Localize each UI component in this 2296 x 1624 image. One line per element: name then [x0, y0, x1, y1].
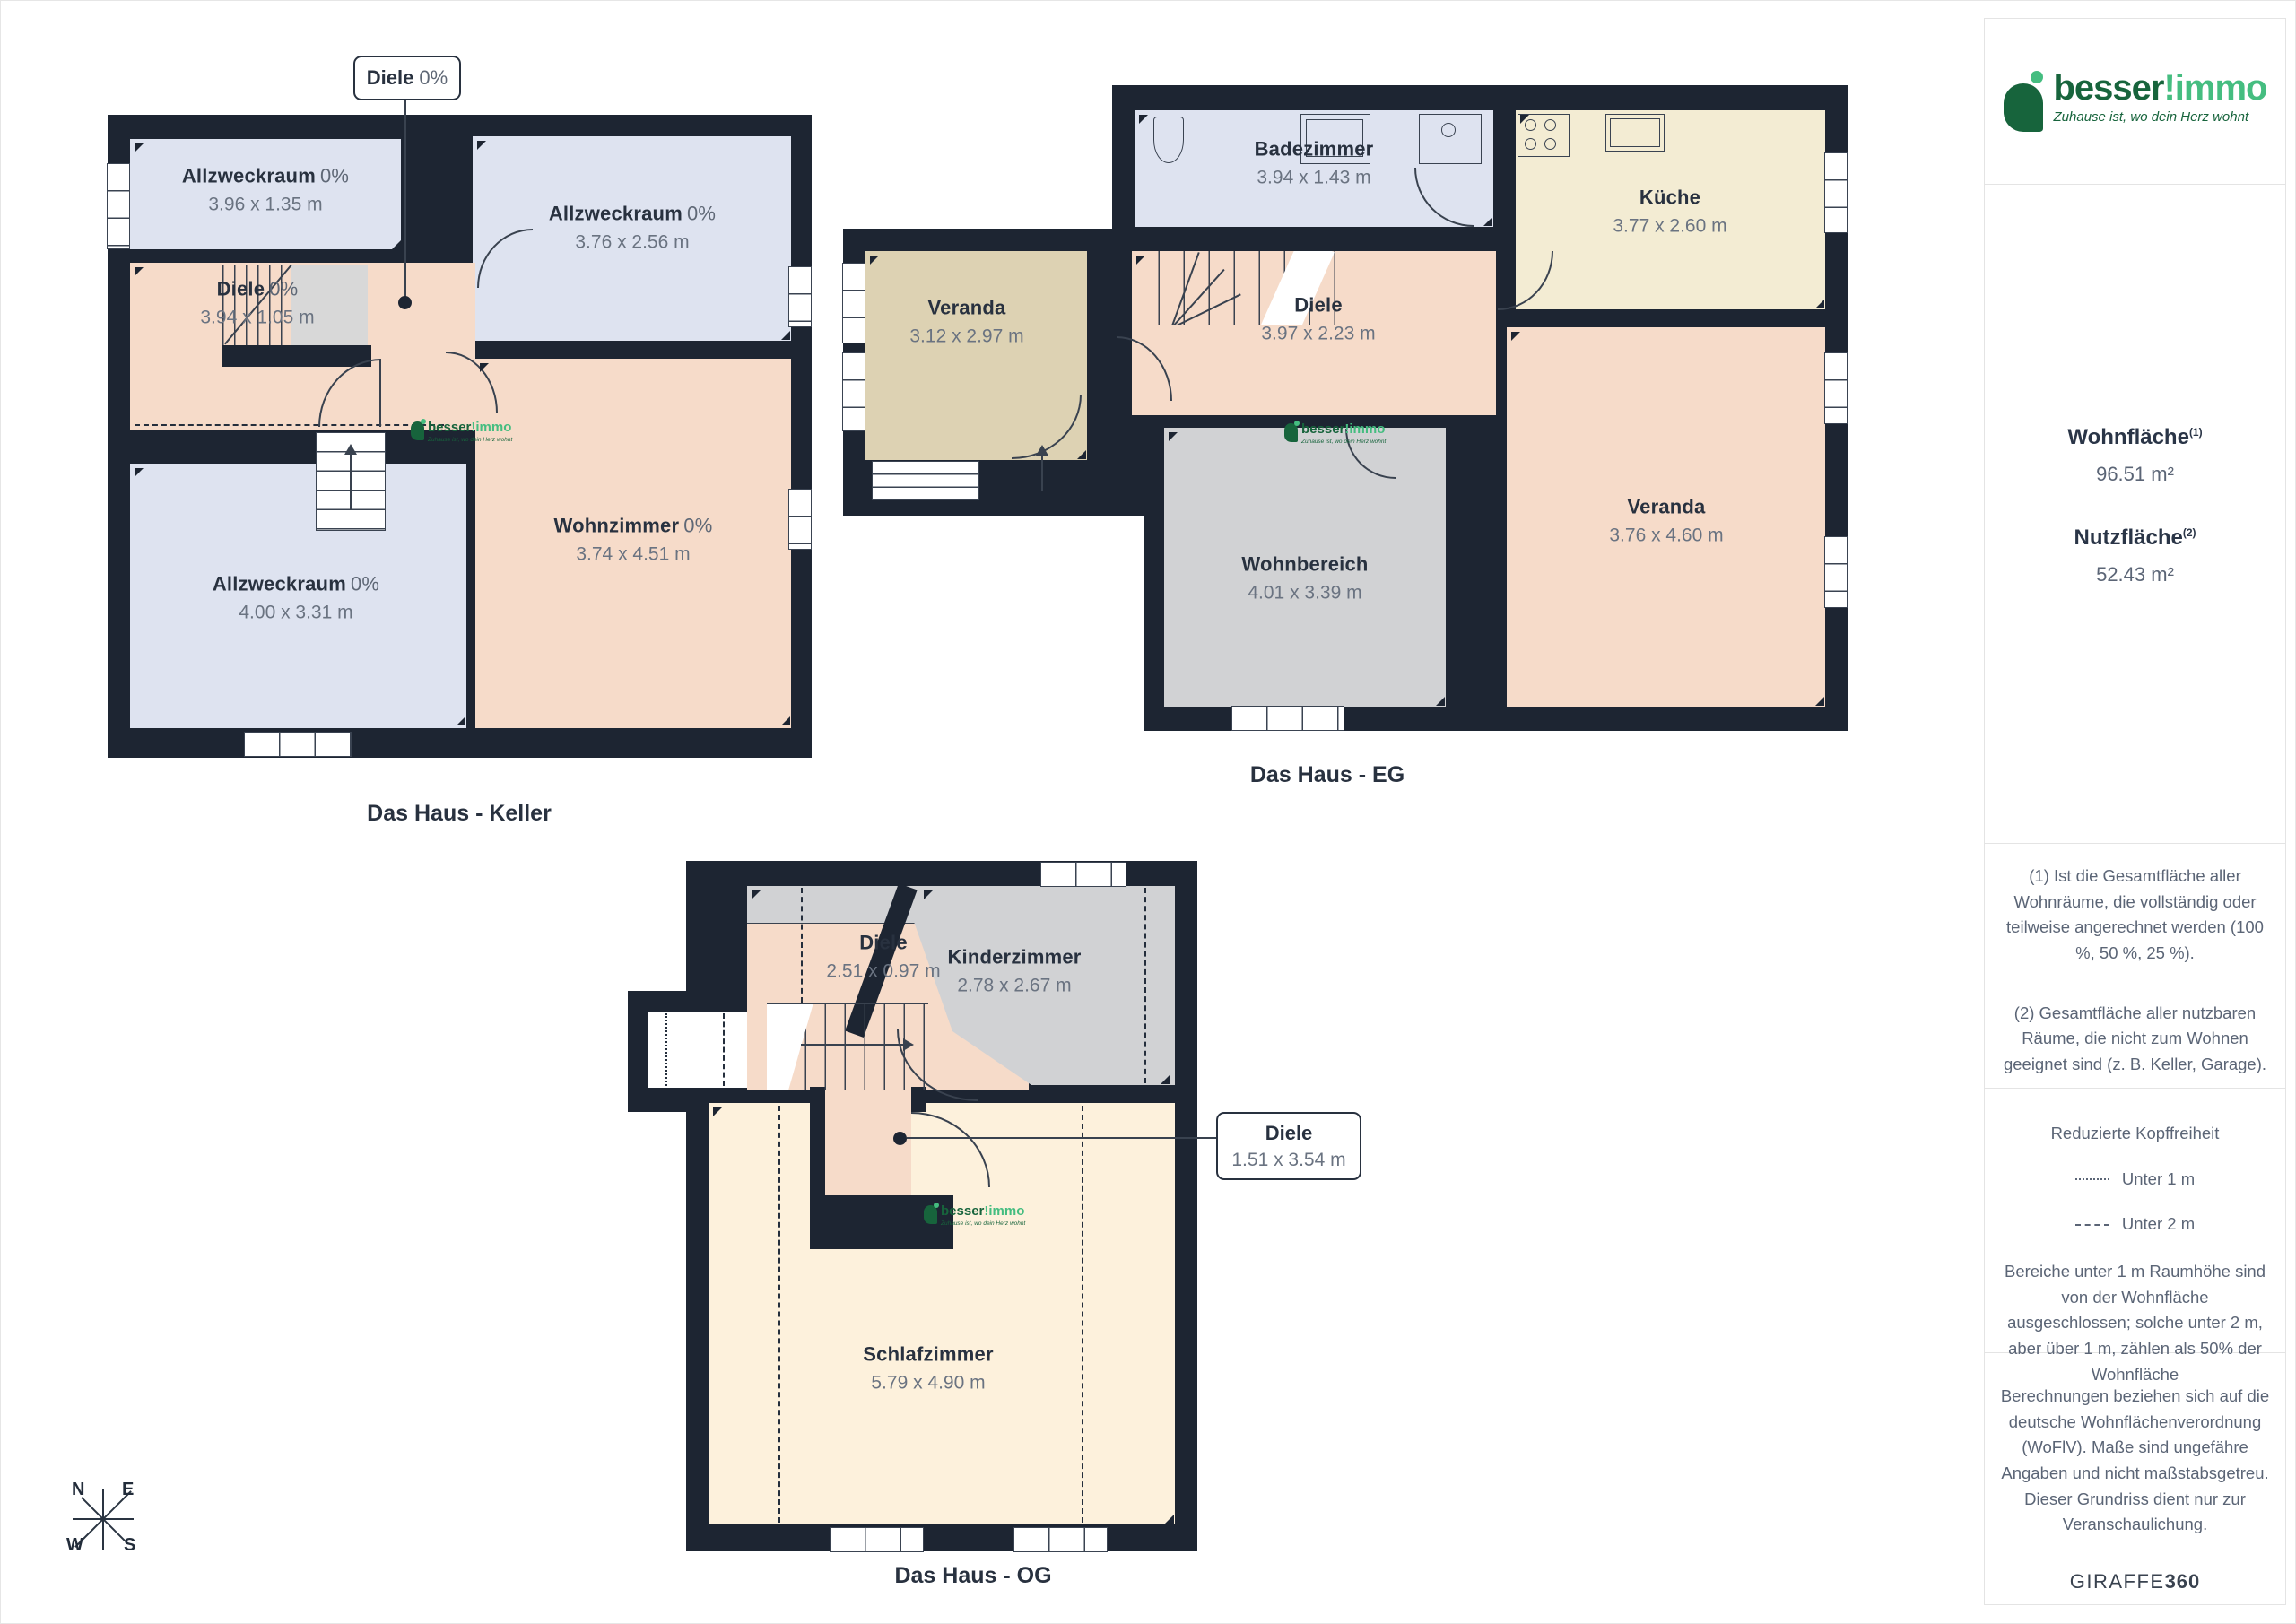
room-label: Diele0% 3.94 x 1.05 m: [200, 278, 314, 329]
floorplan-sheet: Diele 0% besser!immo Zuhause ist, wo dei…: [0, 0, 2296, 1624]
dotted-line-icon: [2075, 1178, 2109, 1180]
room-name: Diele: [217, 278, 265, 300]
wall: [810, 1087, 825, 1200]
wohnflaeche-text: Wohnfläche: [2067, 425, 2189, 449]
room-label: Diele 3.97 x 2.23 m: [1261, 294, 1375, 345]
compass-east: E: [122, 1480, 134, 1500]
compass-west: W: [66, 1535, 83, 1556]
watermark-text: besser!immo Zuhause ist, wo dein Herz wo…: [941, 1203, 1025, 1228]
room-label: Allzweckraum0% 3.76 x 2.56 m: [549, 203, 716, 254]
headroom-line-2m: [1082, 1106, 1083, 1523]
burner: [1525, 138, 1536, 150]
callout-leader-line: [907, 1137, 1216, 1139]
entry-arrow-stem: [1041, 456, 1043, 491]
window: [1040, 862, 1126, 887]
callout-diele: Diele 0%: [353, 56, 461, 100]
stair-direction-line: [801, 1044, 907, 1046]
room-dims: 3.12 x 2.97 m: [909, 326, 1023, 348]
wohnflaeche-sup: (1): [2189, 426, 2203, 439]
wall: [911, 1087, 926, 1112]
wall: [1087, 251, 1130, 335]
callout-room-name: Diele: [367, 66, 414, 90]
room-label: Veranda 3.12 x 2.97 m: [909, 297, 1023, 348]
room-pct: 0%: [269, 278, 298, 300]
room-name: Allzweckraum: [549, 203, 683, 225]
room-label: Schlafzimmer 5.79 x 4.90 m: [863, 1343, 993, 1394]
room-label: Wohnbereich 4.01 x 3.39 m: [1241, 553, 1368, 604]
brand-word-light: !immo: [984, 1203, 1024, 1219]
sidebar-footnotes-section: (1) Ist die Gesamtfläche aller Wohnräume…: [1985, 844, 2285, 1089]
watermark-logo: besser!immo Zuhause ist, wo dein Herz wo…: [1284, 421, 1386, 446]
brand-glyph-dot: [2031, 71, 2043, 83]
brand-tagline: Zuhause ist, wo dein Herz wohnt: [1301, 439, 1386, 446]
room-label: Badezimmer 3.94 x 1.43 m: [1255, 138, 1374, 189]
wohnflaeche-value: 96.51 m²: [1997, 463, 2273, 486]
room-name: Diele: [859, 932, 908, 954]
window: [1824, 352, 1848, 424]
burner: [1544, 138, 1556, 150]
entry-arrow-icon: [344, 444, 357, 455]
room-name: Badezimmer: [1255, 138, 1374, 161]
sidebar-disclaimer-section: Berechnungen beziehen sich auf die deuts…: [1985, 1353, 2285, 1606]
door-leaf: [379, 359, 381, 427]
brand-tagline: Zuhause ist, wo dein Herz wohnt: [2054, 109, 2267, 125]
sidebar-area-section: Wohnfläche(1) 96.51 m² Nutzfläche(2) 52.…: [1985, 185, 2285, 844]
watermark-logo: besser!immo Zuhause ist, wo dein Herz wo…: [411, 420, 512, 444]
window: [788, 489, 812, 550]
footnote-1: (1) Ist die Gesamtfläche aller Wohnräume…: [1997, 864, 2273, 967]
brand-glyph-shape: [2004, 83, 2043, 132]
stair-edge: [767, 1003, 928, 1004]
room-label: Allzweckraum0% 4.00 x 3.31 m: [213, 573, 379, 624]
headroom-line-2m: [801, 888, 803, 1003]
room-name: Schlafzimmer: [863, 1343, 993, 1366]
giraffe360-brand: GIRAFFE360: [1997, 1570, 2273, 1594]
sidebar-headroom-section: Reduzierte Kopffreiheit Unter 1 m Unter …: [1985, 1089, 2285, 1353]
window: [1013, 1527, 1108, 1552]
room-label: Veranda 3.76 x 4.60 m: [1609, 496, 1723, 547]
callout-room-dims: 1.51 x 3.54 m: [1231, 1150, 1345, 1171]
room-dims: 3.94 x 1.43 m: [1255, 168, 1374, 189]
callout-anchor-dot: [398, 296, 412, 309]
window: [107, 163, 130, 249]
room-pct: 0%: [683, 515, 712, 537]
nutzflaeche-label: Nutzfläche(2): [1997, 525, 2273, 551]
room-dims: 3.77 x 2.60 m: [1613, 216, 1726, 238]
legend-unter-2m: Unter 2 m: [1997, 1211, 2273, 1238]
floor-title-keller: Das Haus - Keller: [367, 801, 552, 827]
legend-unter-1m-label: Unter 1 m: [2122, 1167, 2195, 1193]
window: [1231, 706, 1344, 731]
brand-word-light: !immo: [1344, 421, 1385, 437]
room-dims: 2.78 x 2.67 m: [947, 976, 1081, 997]
room-label: Allzweckraum0% 3.96 x 1.35 m: [182, 165, 349, 216]
wohnflaeche-label: Wohnfläche(1): [1997, 425, 2273, 450]
room-pct: 0%: [320, 165, 349, 187]
headroom-line-2m: [778, 1106, 780, 1523]
room-name: Allzweckraum: [182, 165, 316, 187]
room-name: Veranda: [1627, 496, 1705, 518]
callout-anchor-dot: [893, 1132, 907, 1145]
nutzflaeche-value: 52.43 m²: [1997, 563, 2273, 586]
floor-title-og: Das Haus - OG: [894, 1563, 1051, 1589]
window: [1824, 152, 1848, 233]
wall: [222, 345, 371, 367]
legend-unter-1m: Unter 1 m: [1997, 1167, 2273, 1193]
entry-arrow-icon: [1036, 445, 1048, 456]
dashed-line-icon: [2075, 1224, 2109, 1226]
kopffreiheit-title: Reduzierte Kopffreiheit: [1997, 1121, 2273, 1147]
room-dims: 5.79 x 4.90 m: [863, 1373, 993, 1394]
room-pct: 0%: [351, 573, 379, 595]
stair-cut: [767, 1004, 813, 1090]
window: [842, 352, 865, 431]
nutzflaeche-sup: (2): [2183, 526, 2196, 539]
bathtub-drain: [1441, 123, 1456, 137]
burner: [1525, 119, 1536, 131]
sidebar-logo-section: besser!immo Zuhause ist, wo dein Herz wo…: [1985, 19, 2285, 185]
brand-glyph-icon: [2004, 69, 2045, 134]
window: [788, 266, 812, 327]
brand-logo: besser!immo Zuhause ist, wo dein Herz wo…: [2004, 69, 2267, 134]
brand-word-dark: besser: [2054, 68, 2164, 108]
room-dims: 3.94 x 1.05 m: [200, 308, 314, 329]
room-name: Veranda: [927, 297, 1005, 319]
room-label: Wohnzimmer0% 3.74 x 4.51 m: [554, 515, 713, 566]
headroom-line-1m: [665, 1013, 667, 1086]
room-name: Wohnzimmer: [554, 515, 680, 537]
room-dims: 2.51 x 0.97 m: [826, 961, 940, 983]
brand-glyph-icon: [411, 421, 424, 440]
burner: [1544, 119, 1556, 131]
toilet-icon: [1153, 117, 1184, 163]
room-dims: 4.01 x 3.39 m: [1241, 583, 1368, 604]
room-label: Diele 2.51 x 0.97 m: [826, 932, 940, 983]
callout-room-name: Diele: [1265, 1122, 1313, 1145]
brand-tagline: Zuhause ist, wo dein Herz wohnt: [941, 1221, 1025, 1228]
compass-north: N: [72, 1480, 84, 1500]
window: [244, 732, 352, 757]
legend-unter-2m-label: Unter 2 m: [2122, 1211, 2195, 1238]
room-dims: 3.96 x 1.35 m: [182, 195, 349, 216]
window: [1824, 536, 1848, 608]
room-label: Kinderzimmer 2.78 x 2.67 m: [947, 946, 1081, 997]
brand-wordmark: besser!immo Zuhause ist, wo dein Herz wo…: [2054, 69, 2267, 125]
footnote-2: (2) Gesamtfläche aller nutzbaren Räume, …: [1997, 1001, 2273, 1078]
watermark-text: besser!immo Zuhause ist, wo dein Herz wo…: [1301, 421, 1386, 446]
brand-word-dark: besser: [428, 420, 471, 435]
headroom-line-2m: [1144, 888, 1146, 1083]
kitchen-sink-icon: [1605, 114, 1665, 152]
callout-leader-line: [404, 97, 406, 297]
room-name: Küche: [1639, 187, 1700, 209]
headroom-line-2m: [723, 1013, 725, 1086]
callout-diele-og: Diele 1.51 x 3.54 m: [1216, 1112, 1361, 1180]
brand-glyph-icon: [924, 1205, 937, 1224]
room-dims: 3.74 x 4.51 m: [554, 544, 713, 566]
entry-steps: [872, 461, 979, 500]
room-dims: 4.00 x 3.31 m: [213, 603, 379, 624]
room-dims: 3.97 x 2.23 m: [1261, 324, 1375, 345]
window: [842, 263, 865, 343]
headroom-line-2m: [135, 424, 444, 426]
stair-small: [316, 432, 386, 531]
watermark-logo: besser!immo Zuhause ist, wo dein Herz wo…: [924, 1203, 1025, 1228]
room-name: Wohnbereich: [1241, 553, 1368, 576]
room-dims: 3.76 x 2.56 m: [549, 232, 716, 254]
entry-arrow-stem: [350, 455, 352, 510]
sidebar: besser!immo Zuhause ist, wo dein Herz wo…: [1984, 18, 2286, 1605]
brand-word-light: !immo: [471, 420, 511, 435]
room-name: Diele: [1294, 294, 1343, 317]
watermark-text: besser!immo Zuhause ist, wo dein Herz wo…: [428, 420, 512, 444]
room-dims: 3.76 x 4.60 m: [1609, 525, 1723, 547]
brand-word-dark: besser: [941, 1203, 984, 1219]
brand-glyph-icon: [1284, 423, 1298, 442]
giraffe-360: 360: [2165, 1570, 2201, 1593]
floor-title-eg: Das Haus - EG: [1250, 762, 1405, 788]
brand-tagline: Zuhause ist, wo dein Herz wohnt: [428, 438, 512, 444]
callout-room-pct: 0%: [419, 66, 448, 90]
room-pct: 0%: [687, 203, 716, 225]
compass-south: S: [124, 1535, 135, 1556]
giraffe-text: GIRAFFE: [2070, 1570, 2165, 1593]
brand-word-dark: besser: [1301, 421, 1344, 437]
room-name: Allzweckraum: [213, 573, 346, 595]
stove-icon: [1518, 114, 1570, 157]
bathtub-icon: [1419, 114, 1482, 164]
room-name: Kinderzimmer: [947, 946, 1081, 968]
brand-word-light: !immo: [2163, 68, 2266, 108]
disclaimer-text: Berechnungen beziehen sich auf die deuts…: [1997, 1384, 2273, 1538]
nutzflaeche-text: Nutzfläche: [2074, 525, 2182, 550]
sink-basin: [1610, 118, 1660, 147]
window: [830, 1527, 924, 1552]
room-label: Küche 3.77 x 2.60 m: [1613, 187, 1726, 238]
